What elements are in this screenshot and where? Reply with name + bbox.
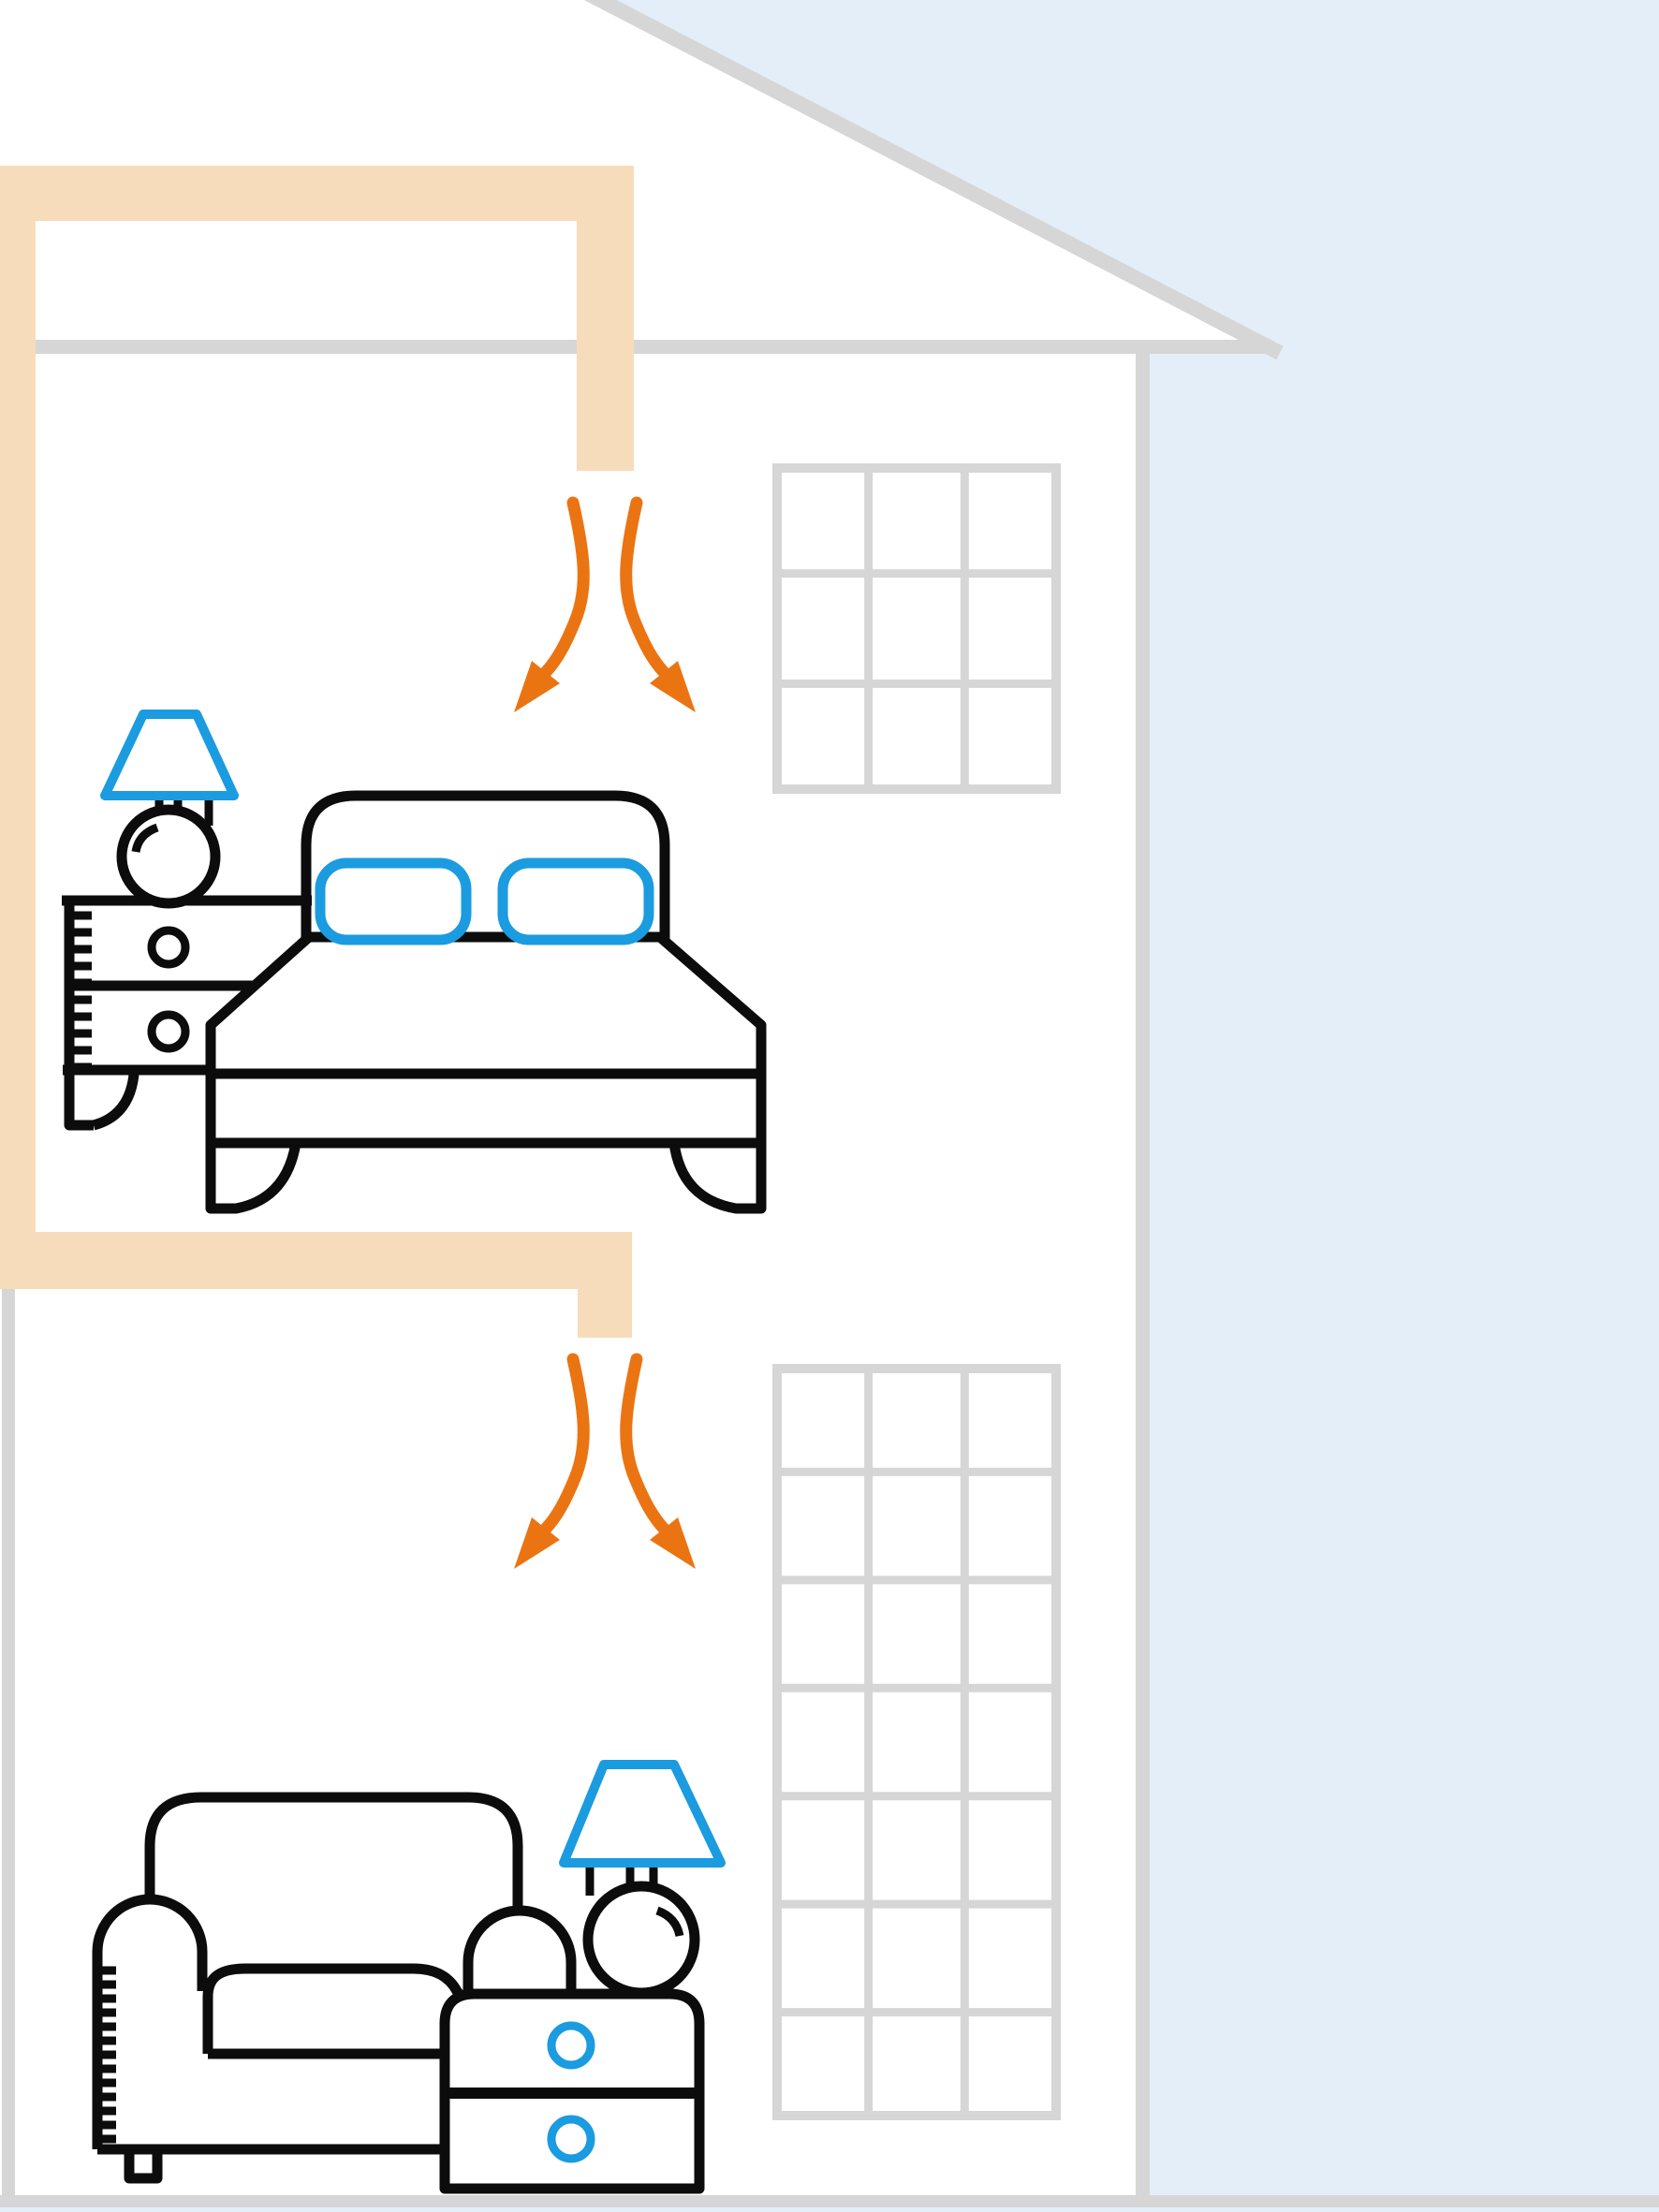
bed-pillow-left: [320, 863, 466, 940]
drawer-knob: [551, 2026, 591, 2065]
right-wall: [1136, 346, 1150, 2195]
left-wall-lower: [2, 1289, 15, 2195]
interfloor-duct-run: [0, 1232, 632, 1289]
drawer-knob: [551, 2119, 591, 2159]
lamp-base: [122, 810, 215, 903]
lower-vent-outlet: [578, 1289, 632, 1338]
lamp-base: [588, 1886, 695, 1993]
livingroom-nightstand: [445, 1994, 699, 2189]
bed-pillow-right: [503, 863, 649, 940]
upper-vent-outlet: [577, 221, 634, 471]
bed-duvet: [211, 937, 761, 1074]
house-ventilation-diagram: [0, 0, 1659, 2212]
duct-left-riser: [0, 166, 36, 1289]
ground-floor-line: [0, 2195, 1659, 2207]
fringe-texture: [97, 1970, 116, 2139]
ground-bottom-strip: [0, 2207, 1659, 2212]
attic-duct-run: [0, 166, 634, 221]
bed-frame-rail: [211, 1074, 761, 1143]
